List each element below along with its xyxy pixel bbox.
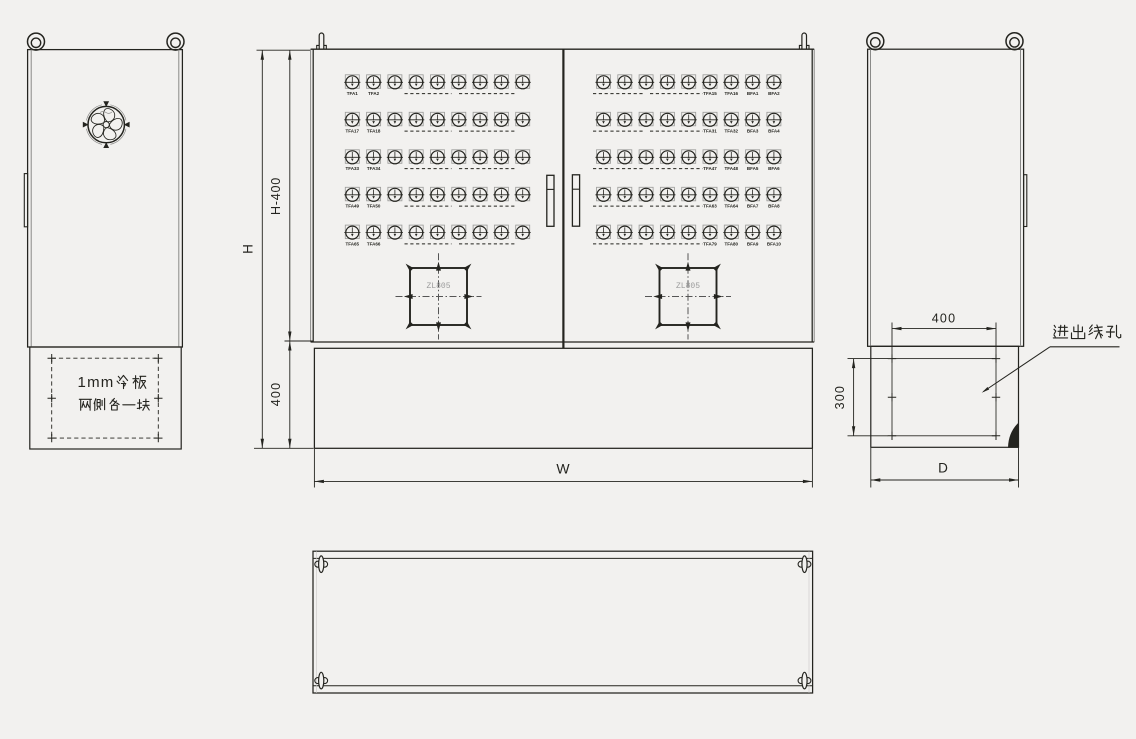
- svg-text:300: 300: [833, 385, 847, 409]
- svg-text:TFA47: TFA47: [703, 166, 717, 171]
- svg-text:BFA4: BFA4: [768, 129, 780, 134]
- svg-text:TFA65: TFA65: [346, 241, 360, 246]
- svg-text:ZL805: ZL805: [676, 282, 700, 291]
- svg-text:TFA16: TFA16: [725, 91, 739, 96]
- svg-text:TFA32: TFA32: [725, 129, 739, 134]
- svg-text:TFA63: TFA63: [703, 204, 717, 209]
- svg-text:ZL805: ZL805: [426, 282, 450, 291]
- svg-text:BFA5: BFA5: [747, 166, 759, 171]
- svg-text:TFA2: TFA2: [368, 91, 379, 96]
- svg-text:H-400: H-400: [269, 177, 283, 215]
- svg-text:BFA7: BFA7: [747, 204, 759, 209]
- svg-text:TFA79: TFA79: [703, 241, 717, 246]
- svg-text:400: 400: [269, 382, 283, 406]
- svg-text:TFA66: TFA66: [367, 241, 381, 246]
- svg-text:TFA50: TFA50: [367, 204, 381, 209]
- svg-text:TFA15: TFA15: [703, 91, 717, 96]
- svg-text:D: D: [938, 461, 948, 476]
- svg-text:BFA6: BFA6: [768, 166, 780, 171]
- svg-text:BFA8: BFA8: [768, 204, 780, 209]
- svg-text:TFA64: TFA64: [725, 204, 739, 209]
- svg-text:TFA49: TFA49: [346, 204, 360, 209]
- svg-text:BFA1: BFA1: [747, 91, 759, 96]
- svg-text:BFA9: BFA9: [747, 241, 759, 246]
- svg-text:TFA48: TFA48: [725, 166, 739, 171]
- svg-text:TFA17: TFA17: [346, 129, 360, 134]
- svg-text:BFA2: BFA2: [768, 91, 780, 96]
- svg-text:TFA31: TFA31: [703, 129, 717, 134]
- svg-text:TFA1: TFA1: [347, 91, 358, 96]
- svg-text:TFA18: TFA18: [367, 129, 381, 134]
- svg-text:TFA80: TFA80: [725, 241, 739, 246]
- svg-text:400: 400: [932, 312, 956, 326]
- svg-text:BFA10: BFA10: [767, 241, 782, 246]
- svg-text:W: W: [556, 461, 570, 477]
- svg-text:TFA34: TFA34: [367, 166, 381, 171]
- svg-text:1mm: 1mm: [78, 374, 115, 391]
- svg-text:BFA3: BFA3: [747, 129, 759, 134]
- svg-text:H: H: [241, 244, 256, 254]
- svg-text:TFA33: TFA33: [346, 166, 360, 171]
